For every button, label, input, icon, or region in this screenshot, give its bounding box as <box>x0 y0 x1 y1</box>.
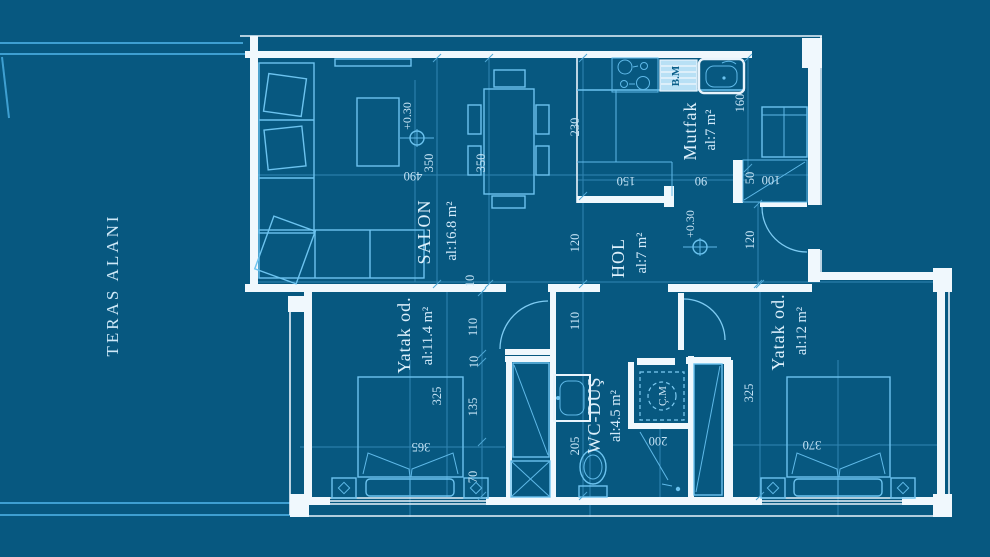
salon-area: al:16.8 m² <box>444 201 460 261</box>
svg-text:200: 200 <box>649 434 668 448</box>
svg-text:325: 325 <box>430 387 444 406</box>
salon-name: SALON <box>414 199 434 264</box>
wc-area: al:4.5 m² <box>608 389 624 442</box>
wc-name: WC-DUŞ <box>584 377 604 454</box>
svg-text:365: 365 <box>412 440 431 454</box>
bedroom1-furniture <box>332 363 550 498</box>
yatak2-area: al:12 m² <box>794 306 810 355</box>
svg-text:205: 205 <box>568 437 582 456</box>
dishwasher-icon: B.M <box>660 60 697 91</box>
washing-machine-label: Ç.M <box>657 386 669 406</box>
salon-furniture <box>255 59 549 284</box>
hol-area: al:7 m² <box>634 232 650 274</box>
svg-text:350: 350 <box>474 154 488 173</box>
washing-machine-icon: Ç.M <box>640 372 684 420</box>
svg-text:110: 110 <box>568 312 582 330</box>
dishwasher-label: B.M <box>670 65 682 86</box>
svg-text:110: 110 <box>466 318 480 336</box>
svg-text:120: 120 <box>568 234 582 253</box>
doors <box>500 202 807 355</box>
svg-text:160: 160 <box>733 94 747 113</box>
stove-icon <box>612 58 658 92</box>
level-marker-hol: +0.30 <box>683 210 717 256</box>
hol-name: HOL <box>608 238 628 278</box>
svg-text:325: 325 <box>742 384 756 403</box>
level-marker-salon: +0.30 <box>400 102 434 147</box>
svg-text:490: 490 <box>404 169 423 183</box>
svg-text:70: 70 <box>466 471 480 484</box>
svg-text:90: 90 <box>695 174 708 188</box>
mutfak-area: al:7 m² <box>703 109 719 151</box>
blueprint-floor-plan: TERAS ALANI <box>0 0 990 557</box>
svg-text:+0.30: +0.30 <box>683 210 697 238</box>
svg-text:230: 230 <box>568 118 582 137</box>
svg-text:50: 50 <box>743 172 757 185</box>
sink-icon <box>699 59 744 93</box>
yatak1-area: al:11.4 m² <box>420 306 436 365</box>
svg-text:10: 10 <box>463 275 477 288</box>
yatak2-name: Yatak od. <box>768 293 788 370</box>
yatak1-name: Yatak od. <box>394 296 414 373</box>
svg-text:135: 135 <box>466 398 480 417</box>
svg-text:+0.30: +0.30 <box>400 102 414 130</box>
floor-plan-svg: TERAS ALANI <box>0 0 990 557</box>
svg-text:370: 370 <box>803 438 822 452</box>
svg-text:120: 120 <box>743 231 757 250</box>
svg-text:350: 350 <box>422 154 436 173</box>
terrace-label: TERAS ALANI <box>103 213 122 356</box>
svg-text:150: 150 <box>617 174 636 188</box>
svg-text:100: 100 <box>762 173 781 187</box>
mutfak-name: Mutfak <box>680 102 700 161</box>
